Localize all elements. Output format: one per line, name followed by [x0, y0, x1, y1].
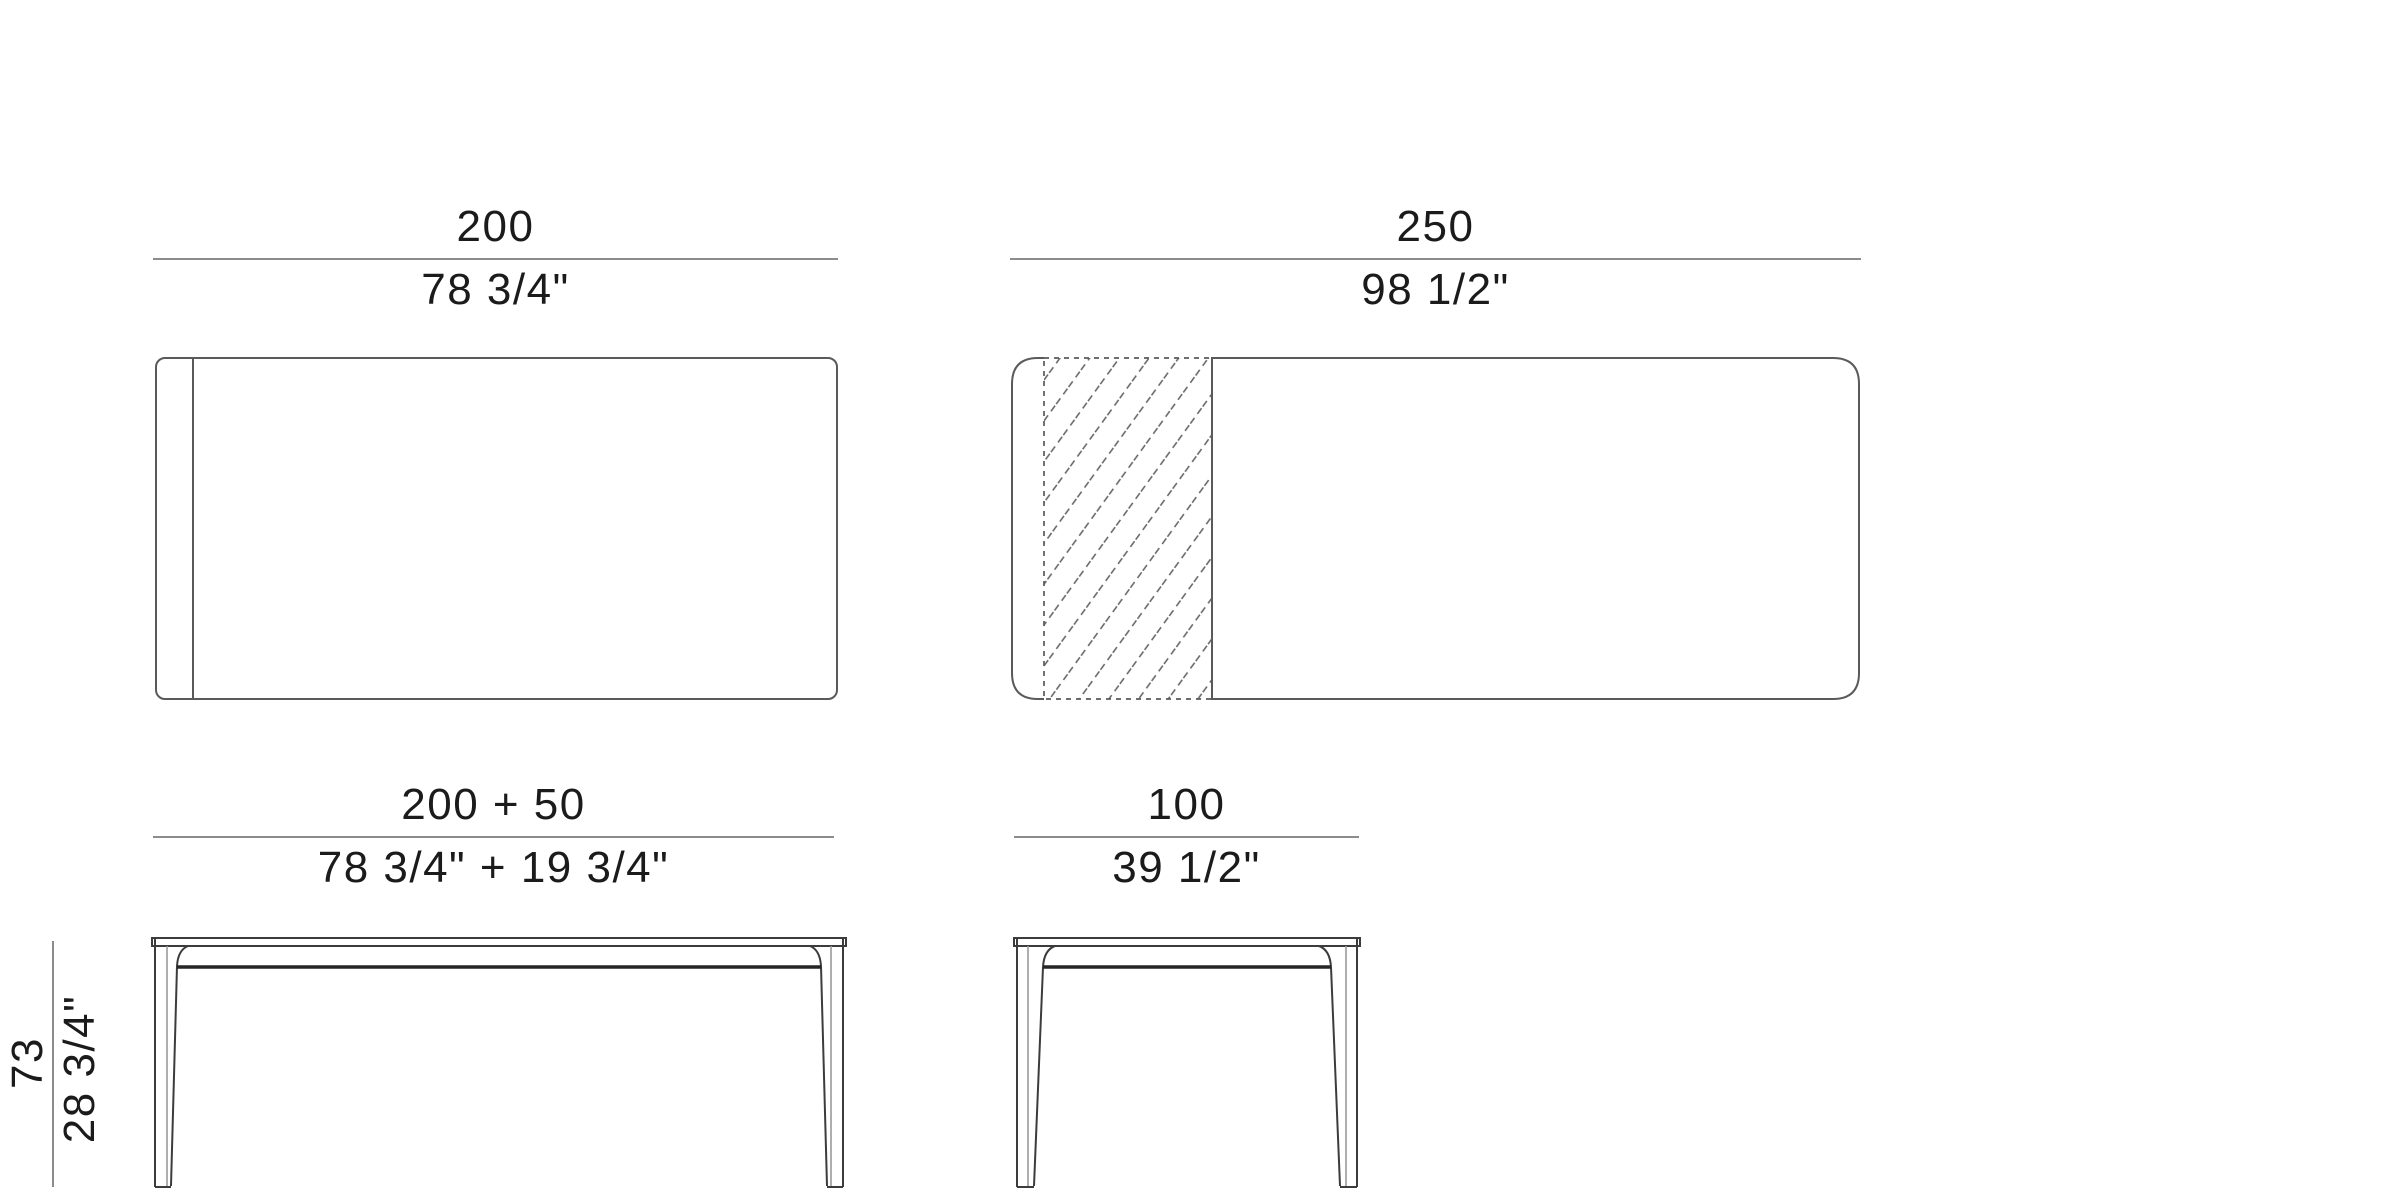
left-leg-inner-edge — [1034, 946, 1055, 1186]
right-leg-inner-edge — [1319, 946, 1340, 1186]
side-elevation — [152, 938, 846, 1187]
dimension-value-cm: 200 — [153, 202, 838, 258]
tabletop-slab — [152, 938, 846, 946]
dimension-value-cm: 100 — [1014, 780, 1359, 836]
technical-drawing — [0, 0, 2400, 1200]
dimension-value-cm: 73 — [3, 1037, 53, 1089]
dimension-length-extended: 250 98 1/2" — [1010, 202, 1861, 315]
dimension-length-closed: 200 78 3/4" — [153, 202, 838, 315]
end-elevation — [1014, 938, 1360, 1187]
dimension-value-inches: 39 1/2" — [1014, 838, 1359, 893]
left-leg-inner-edge — [171, 946, 188, 1186]
right-leg-inner-edge — [810, 946, 827, 1186]
dimension-value-cm: 250 — [1010, 202, 1861, 258]
dimension-width: 100 39 1/2" — [1014, 780, 1359, 893]
tabletop-outline — [156, 358, 837, 699]
dimension-value-inches: 78 3/4" — [153, 260, 838, 315]
extension-leaf-hatch — [1044, 358, 1212, 699]
plan-view-extended — [1012, 358, 1859, 699]
tabletop-outline — [1212, 358, 1859, 699]
tabletop-slab — [1014, 938, 1360, 946]
drawing-canvas: 200 78 3/4" 250 98 1/2" 200 + 50 78 3/4"… — [0, 0, 2400, 1200]
dimension-value-cm: 200 + 50 — [153, 780, 834, 836]
end-panel-outline — [1012, 358, 1044, 699]
dimension-value-inches: 78 3/4" + 19 3/4" — [153, 838, 834, 893]
dimension-value-inches: 28 3/4" — [55, 995, 105, 1143]
dimension-value-inches: 98 1/2" — [1010, 260, 1861, 315]
dimension-length-with-extension: 200 + 50 78 3/4" + 19 3/4" — [153, 780, 834, 893]
plan-view-closed — [156, 358, 837, 699]
